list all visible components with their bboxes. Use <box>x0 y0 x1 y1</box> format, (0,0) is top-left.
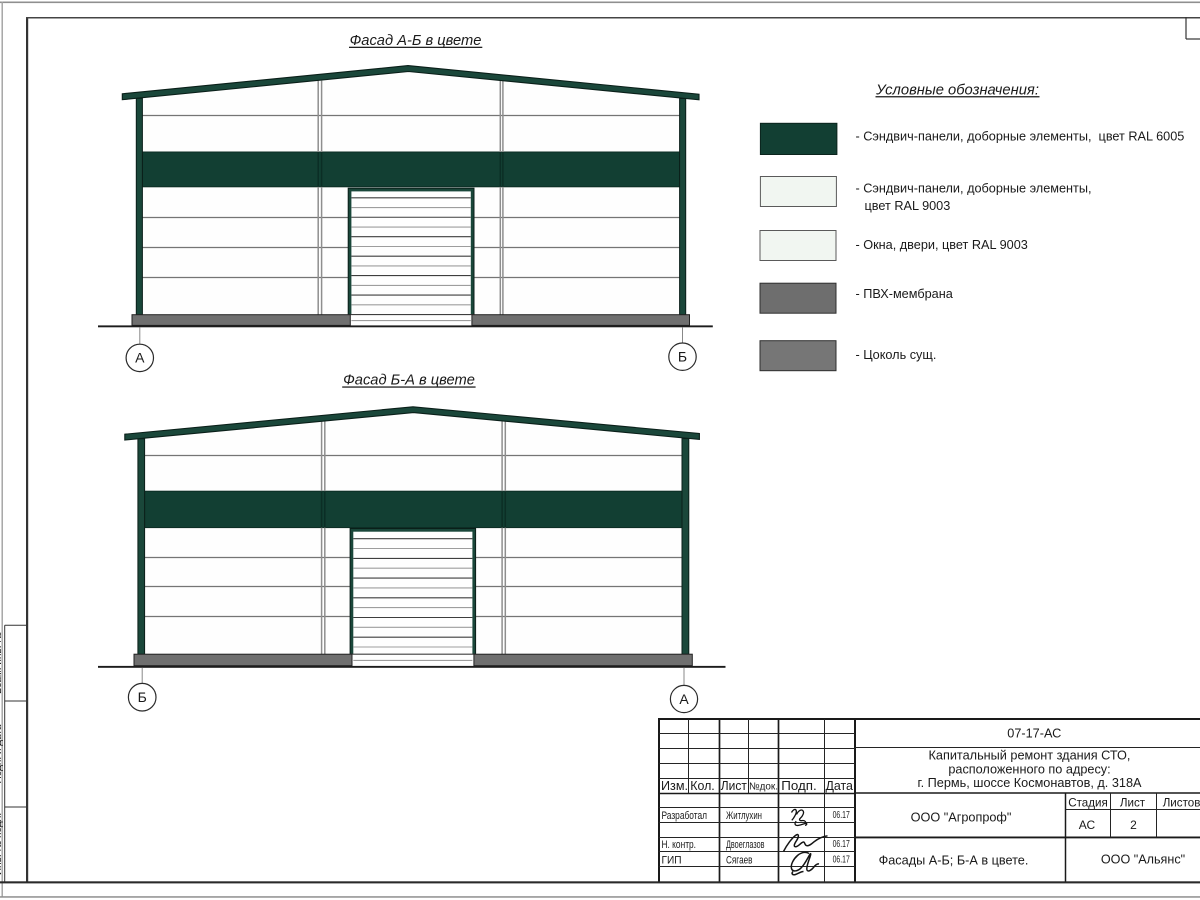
svg-text:06.17: 06.17 <box>833 810 850 821</box>
svg-text:№док.: №док. <box>749 782 778 793</box>
svg-text:АС: АС <box>1079 818 1096 832</box>
svg-text:Взам. инв. №: Взам. инв. № <box>0 632 4 694</box>
svg-text:расположенного по адресу:: расположенного по адресу: <box>948 762 1110 776</box>
svg-text:Подп.: Подп. <box>781 778 817 793</box>
svg-text:ООО "Альянс": ООО "Альянс" <box>1101 853 1185 867</box>
svg-text:Изм.: Изм. <box>661 778 688 793</box>
svg-text:07-17-АС: 07-17-АС <box>1007 727 1061 741</box>
svg-text:г. Пермь, шоссе Космонавтов, д: г. Пермь, шоссе Космонавтов, д. 318А <box>918 776 1142 790</box>
svg-text:Фасады А-Б; Б-А в цвете.: Фасады А-Б; Б-А в цвете. <box>879 854 1029 868</box>
svg-text:Двоеглазов: Двоеглазов <box>726 839 765 851</box>
svg-text:Сягаев: Сягаев <box>726 855 753 867</box>
svg-text:А: А <box>679 691 689 707</box>
svg-text:- Окна, двери, цвет RAL 9003: - Окна, двери, цвет RAL 9003 <box>856 238 1028 252</box>
svg-text:- Сэндвич-панели, доборные эле: - Сэндвич-панели, доборные элементы, <box>856 181 1092 195</box>
svg-text:Фасад Б-А в цвете: Фасад Б-А в цвете <box>343 373 475 389</box>
svg-text:А: А <box>135 350 145 366</box>
svg-text:2: 2 <box>1130 818 1137 832</box>
svg-text:Подп. и дата: Подп. и дата <box>0 724 4 783</box>
svg-text:Условные обозначения:: Условные обозначения: <box>875 82 1039 98</box>
svg-text:Дата: Дата <box>825 778 853 793</box>
svg-text:06.17: 06.17 <box>833 855 850 866</box>
svg-text:Б: Б <box>138 689 147 705</box>
svg-text:Разработал: Разработал <box>662 810 708 822</box>
svg-text:ГИП: ГИП <box>662 855 682 867</box>
svg-text:Кол.: Кол. <box>690 778 715 793</box>
svg-text:Листов: Листов <box>1163 796 1200 809</box>
svg-text:Стадия: Стадия <box>1068 796 1108 809</box>
svg-text:Фасад А-Б в цвете: Фасад А-Б в цвете <box>350 33 482 49</box>
svg-text:ООО "Агропроф": ООО "Агропроф" <box>911 811 1012 825</box>
svg-text:Б: Б <box>678 349 687 365</box>
svg-text:06.17: 06.17 <box>833 839 850 850</box>
svg-text:Инв. № подл.: Инв. № подл. <box>0 813 4 875</box>
svg-text:Н. контр.: Н. контр. <box>662 839 697 851</box>
svg-text:Лист: Лист <box>1120 796 1146 809</box>
svg-text:- Сэндвич-панели, доборные эле: - Сэндвич-панели, доборные элементы, цве… <box>856 130 1185 144</box>
svg-text:Лист: Лист <box>721 778 747 793</box>
svg-text:цвет RAL 9003: цвет RAL 9003 <box>865 199 951 213</box>
svg-text:- Цоколь сущ.: - Цоколь сущ. <box>856 348 937 362</box>
svg-text:- ПВХ-мембрана: - ПВХ-мембрана <box>856 287 954 301</box>
svg-text:Капитальный ремонт здания СТО,: Капитальный ремонт здания СТО, <box>929 749 1131 763</box>
svg-text:Житлухин: Житлухин <box>726 810 762 822</box>
